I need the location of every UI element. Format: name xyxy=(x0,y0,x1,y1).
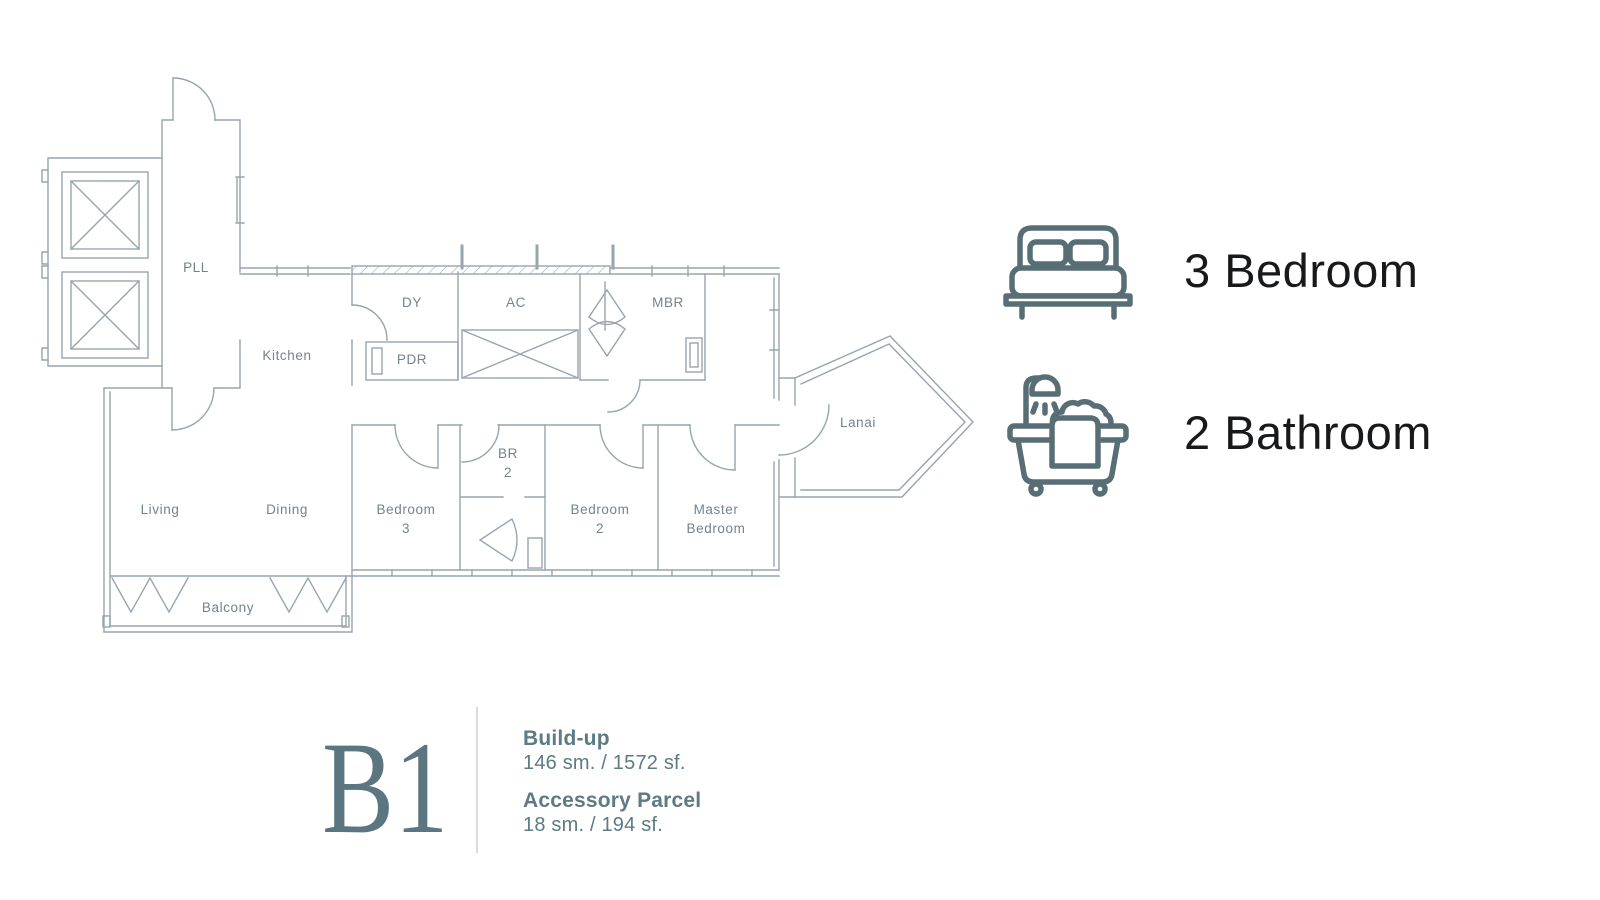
dy-pdr-rooms xyxy=(352,272,458,385)
build-up-value: 146 sm. / 1572 sf. xyxy=(523,751,701,775)
room-label-master-line1: Master xyxy=(694,502,739,517)
accessory-parcel-group: Accessory Parcel 18 sm. / 194 sf. xyxy=(523,789,701,837)
unit-divider xyxy=(476,707,478,853)
service-top-wall xyxy=(352,246,779,276)
unit-details: Build-up 146 sm. / 1572 sf. Accessory Pa… xyxy=(523,727,701,837)
bedroom-walls xyxy=(352,425,779,576)
room-label-dining: Dining xyxy=(266,502,308,517)
room-label-kitchen: Kitchen xyxy=(262,348,311,363)
room-label-br2-line2: 2 xyxy=(504,465,512,480)
bathrooms-feature: 2 Bathroom xyxy=(998,362,1432,502)
room-label-dy: DY xyxy=(402,295,422,310)
build-up-group: Build-up 146 sm. / 1572 sf. xyxy=(523,727,701,775)
room-label-balcony: Balcony xyxy=(202,600,254,615)
right-exterior-wall xyxy=(770,274,829,570)
unit-code: B1 xyxy=(322,722,448,854)
room-label-mbr: MBR xyxy=(652,295,684,310)
bedroom-count-label: 3 Bedroom xyxy=(1184,243,1418,298)
floorplan-page: PLL Kitchen DY PDR AC MBR BR 2 Living Di… xyxy=(0,0,1600,900)
room-label-bedroom2-line1: Bedroom xyxy=(571,502,630,517)
bed-icon xyxy=(998,218,1138,322)
entry-corridor-walls xyxy=(105,78,244,430)
room-label-br2-line1: BR xyxy=(498,446,518,461)
ac-ledge xyxy=(462,274,580,380)
room-label-pdr: PDR xyxy=(397,352,427,367)
master-bathroom xyxy=(580,274,705,412)
accessory-parcel-label: Accessory Parcel xyxy=(523,789,701,813)
room-label-master-line2: Bedroom xyxy=(687,521,746,536)
room-label-bedroom2-line2: 2 xyxy=(596,521,604,536)
accessory-parcel-value: 18 sm. / 194 sf. xyxy=(523,813,701,837)
bathroom-count-label: 2 Bathroom xyxy=(1184,405,1432,460)
room-label-bedroom3-line2: 3 xyxy=(402,521,410,536)
room-label-pll: PLL xyxy=(183,260,209,275)
bedrooms-feature: 3 Bedroom xyxy=(998,218,1418,322)
kitchen-window xyxy=(240,266,350,276)
elevator-shafts xyxy=(42,158,162,366)
room-label-ac: AC xyxy=(506,295,526,310)
room-labels: PLL Kitchen DY PDR AC MBR BR 2 Living Di… xyxy=(141,260,876,615)
room-label-bedroom3-line1: Bedroom xyxy=(377,502,436,517)
room-label-living: Living xyxy=(141,502,180,517)
bathtub-icon xyxy=(998,362,1138,502)
room-label-lanai: Lanai xyxy=(840,415,876,430)
build-up-label: Build-up xyxy=(523,727,701,751)
